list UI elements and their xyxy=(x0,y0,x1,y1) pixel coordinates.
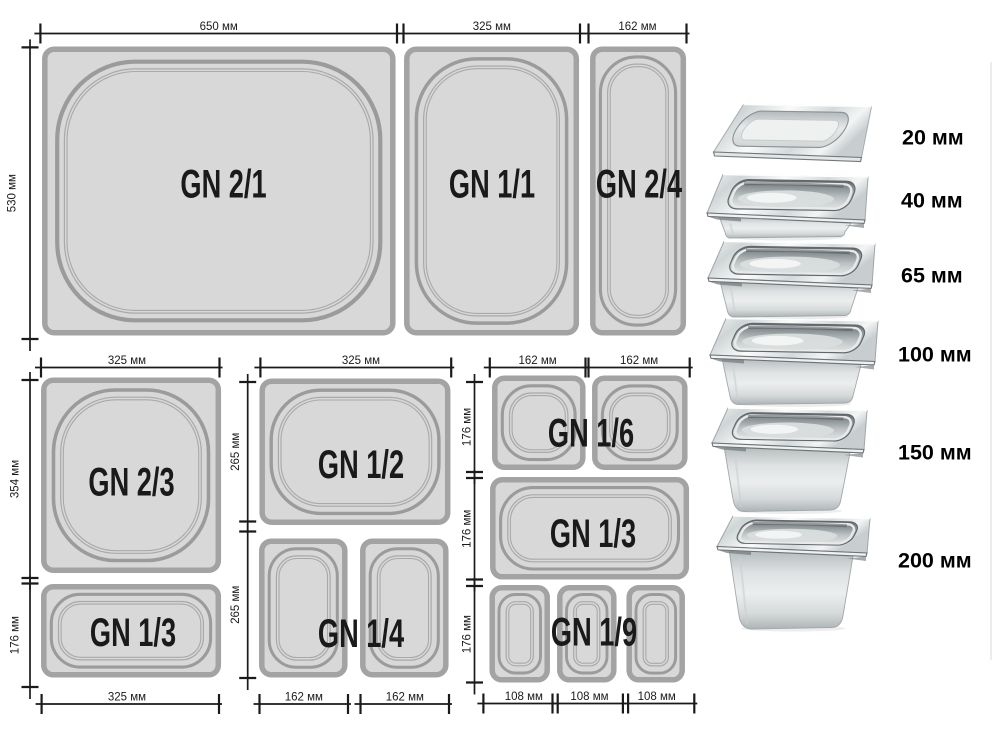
svg-text:GN 1/2: GN 1/2 xyxy=(318,443,404,487)
svg-text:162 мм: 162 мм xyxy=(518,355,556,367)
svg-text:325 мм: 325 мм xyxy=(342,355,380,367)
svg-text:325 мм: 325 мм xyxy=(108,692,146,704)
svg-text:176 мм: 176 мм xyxy=(462,510,474,548)
svg-text:20 мм: 20 мм xyxy=(902,126,964,150)
svg-text:176 мм: 176 мм xyxy=(462,408,474,446)
svg-text:200 мм: 200 мм xyxy=(898,549,972,573)
svg-text:GN 1/6: GN 1/6 xyxy=(548,411,634,455)
svg-text:265 мм: 265 мм xyxy=(230,586,242,624)
svg-text:GN 1/4: GN 1/4 xyxy=(318,612,404,656)
svg-text:150 мм: 150 мм xyxy=(898,441,972,465)
svg-text:650 мм: 650 мм xyxy=(200,21,238,33)
svg-text:GN 1/9: GN 1/9 xyxy=(551,610,637,654)
svg-text:325 мм: 325 мм xyxy=(108,355,146,367)
svg-text:354 мм: 354 мм xyxy=(10,460,22,498)
svg-text:GN 2/4: GN 2/4 xyxy=(596,162,682,206)
svg-text:176 мм: 176 мм xyxy=(462,615,474,653)
svg-text:162 мм: 162 мм xyxy=(386,692,424,704)
svg-text:162 мм: 162 мм xyxy=(620,355,658,367)
svg-text:108 мм: 108 мм xyxy=(505,691,543,703)
svg-text:GN 2/1: GN 2/1 xyxy=(180,162,266,206)
svg-text:530 мм: 530 мм xyxy=(7,174,19,212)
svg-text:GN 1/1: GN 1/1 xyxy=(449,162,535,206)
svg-text:GN 1/3: GN 1/3 xyxy=(550,512,636,556)
svg-text:265 мм: 265 мм xyxy=(230,433,242,471)
svg-text:40 мм: 40 мм xyxy=(901,189,963,213)
svg-text:GN 2/3: GN 2/3 xyxy=(88,460,174,504)
svg-text:GN 1/3: GN 1/3 xyxy=(90,611,176,655)
svg-text:162 мм: 162 мм xyxy=(285,692,323,704)
svg-text:100 мм: 100 мм xyxy=(898,343,972,367)
svg-text:176 мм: 176 мм xyxy=(10,616,22,654)
svg-text:108 мм: 108 мм xyxy=(570,691,608,703)
svg-text:108 мм: 108 мм xyxy=(638,691,676,703)
svg-text:65 мм: 65 мм xyxy=(901,264,963,288)
svg-text:162 мм: 162 мм xyxy=(618,21,656,33)
svg-text:325 мм: 325 мм xyxy=(473,21,511,33)
